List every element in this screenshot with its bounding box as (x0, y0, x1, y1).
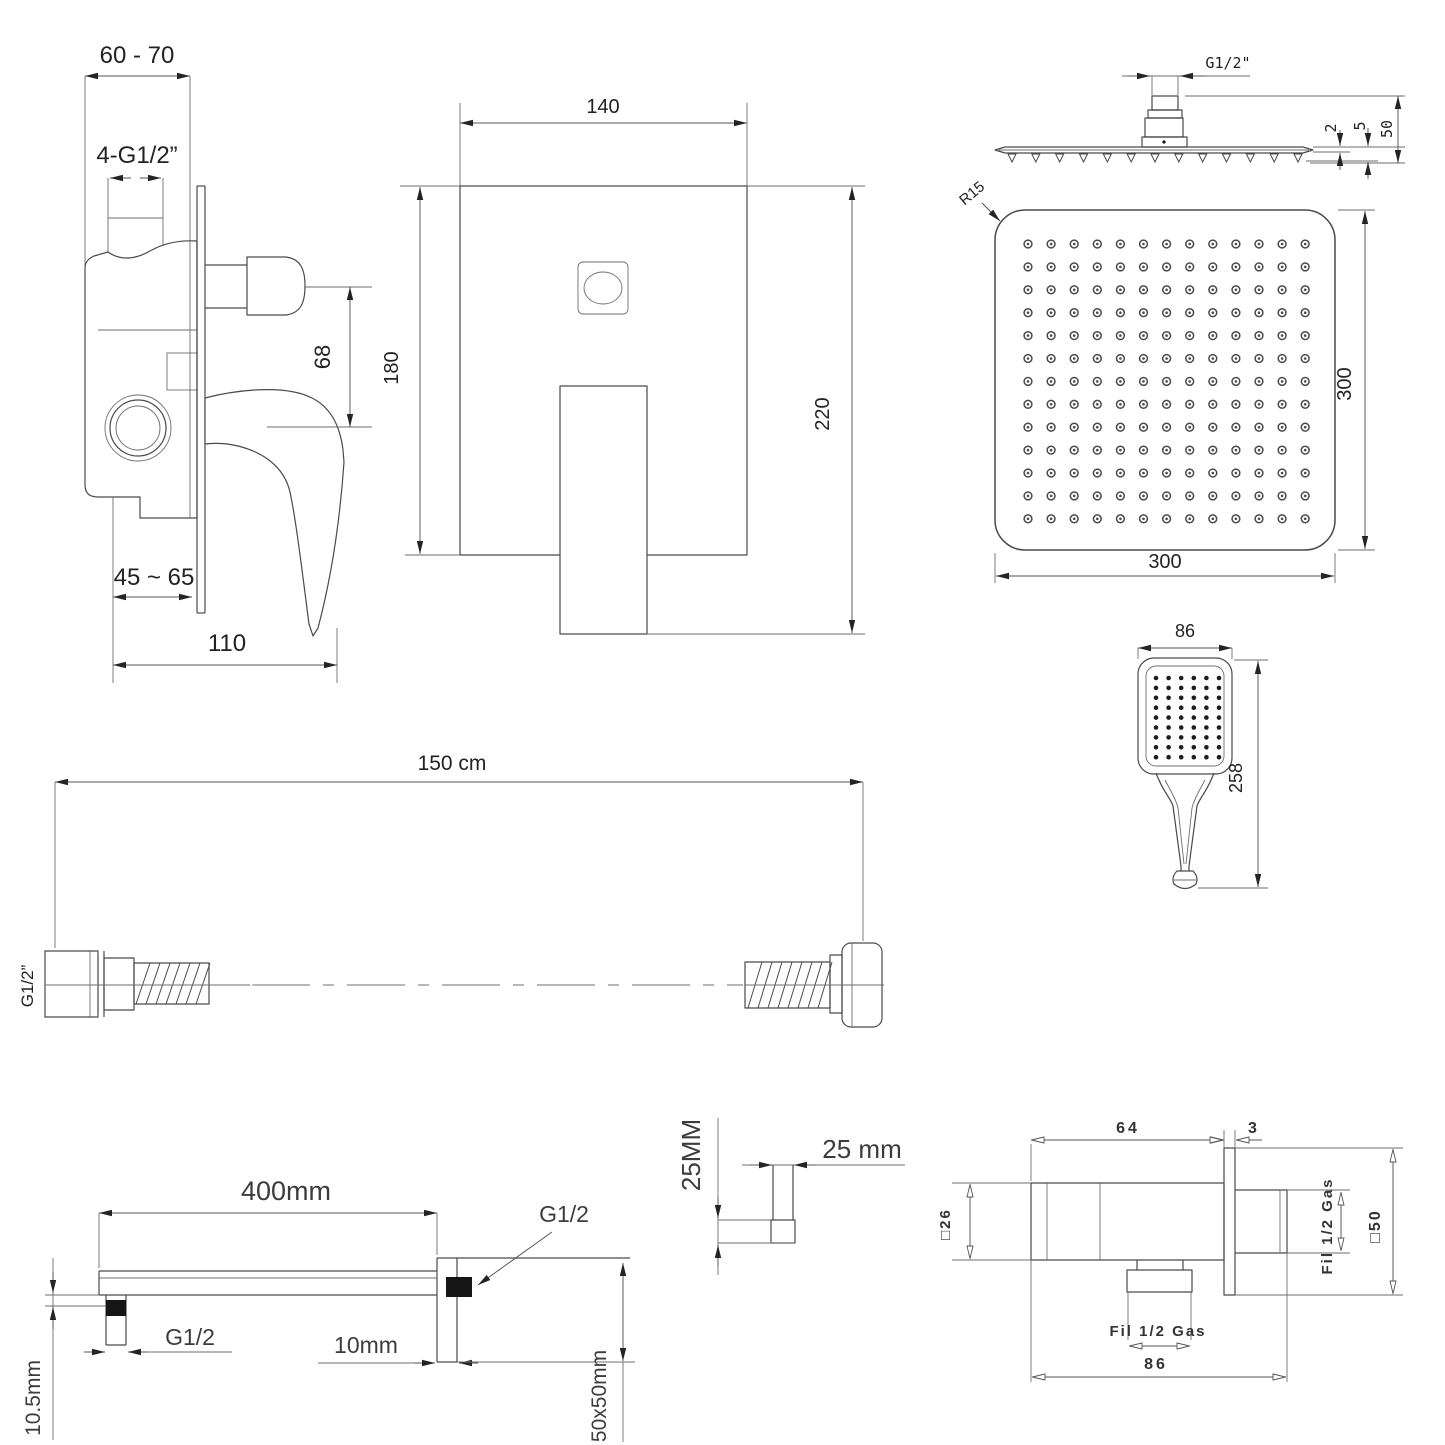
dim-hand-length: 258 (1226, 763, 1246, 793)
dim-depth-range: 45 ~ 65 (114, 564, 195, 591)
dim-hand-width: 86 (1175, 621, 1195, 641)
shower-arm-view: 400mm G1/2 10.5mm G1/2 1 (22, 1176, 635, 1442)
outlet-rear-thread-label: Fil 1/2 Gas (1319, 1177, 1336, 1274)
wall-outlet-view: 64 3 □26 Fil 1/2 Gas Fil 1/2 (937, 1120, 1403, 1382)
mixer-front-view: 140 180 220 (381, 96, 865, 634)
dim-total-height: 220 (812, 397, 834, 430)
dim-outlet-square26: □26 (937, 1208, 954, 1240)
dim-arm-offset: 10mm (334, 1332, 398, 1358)
nozzle-row (1008, 154, 1302, 162)
dim-bracket-width: 25 mm (822, 1134, 901, 1164)
shower-head-side-view: G1/2" 2 5 50 (995, 54, 1405, 179)
dim-outlet-body: 64 (1116, 1120, 1140, 1137)
hose-thread-hatch-left (136, 963, 210, 1004)
dim-outlet-depth: 86 (1144, 1356, 1168, 1373)
dim-head-thread: G1/2" (1205, 54, 1250, 72)
dim-plate-thickness: 2 (1322, 123, 1340, 132)
dim-bracket-height: 25MM (676, 1119, 706, 1191)
dim-arm-length: 400mm (241, 1176, 331, 1206)
dim-wall-depth: 60 - 70 (100, 42, 175, 69)
dim-outlet-plate: 3 (1248, 1120, 1260, 1137)
dim-edge-height: 5 (1351, 121, 1369, 130)
dim-head-total-height: 50 (1378, 120, 1396, 138)
arm-thread-wall-label: G1/2 (539, 1201, 589, 1227)
outlet-bottom-thread-label: Fil 1/2 Gas (1109, 1323, 1206, 1340)
drawing-sheet: 60 - 70 4-G1/2” 68 45 ~ 65 (0, 0, 1445, 1445)
rain-nozzle-grid (1024, 240, 1309, 523)
bracket-detail-view: 25MM 25 mm (676, 1118, 905, 1275)
dim-plate-width: 140 (586, 96, 619, 118)
dim-head-bottom: 300 (1148, 551, 1181, 573)
shower-hose-view: 150 cm G1/2” (18, 752, 884, 1027)
hand-shower-view: 86 258 (1138, 621, 1268, 889)
dim-thread-4g12: 4-G1/2” (96, 142, 177, 169)
hose-thread-label: G1/2” (18, 964, 37, 1007)
dim-head-side: 300 (1334, 367, 1356, 400)
hand-nozzle-grid (1154, 676, 1222, 760)
dim-outlet-square50: □50 (1367, 1209, 1384, 1242)
shower-head-face-view: R15 300 300 (956, 178, 1375, 583)
dim-arm-flange: 50x50mm (588, 1350, 611, 1442)
dim-width-110: 110 (208, 630, 246, 657)
dim-knob-offset: 68 (310, 345, 335, 369)
dim-hose-length: 150 cm (418, 752, 487, 775)
arm-thread-left-label: G1/2 (165, 1324, 215, 1350)
dim-plate-height: 180 (381, 351, 403, 384)
mixer-side-view: 60 - 70 4-G1/2” 68 45 ~ 65 (85, 42, 372, 683)
dim-arm-drop: 10.5mm (22, 1360, 45, 1436)
technical-drawing: 60 - 70 4-G1/2” 68 45 ~ 65 (0, 0, 1445, 1445)
